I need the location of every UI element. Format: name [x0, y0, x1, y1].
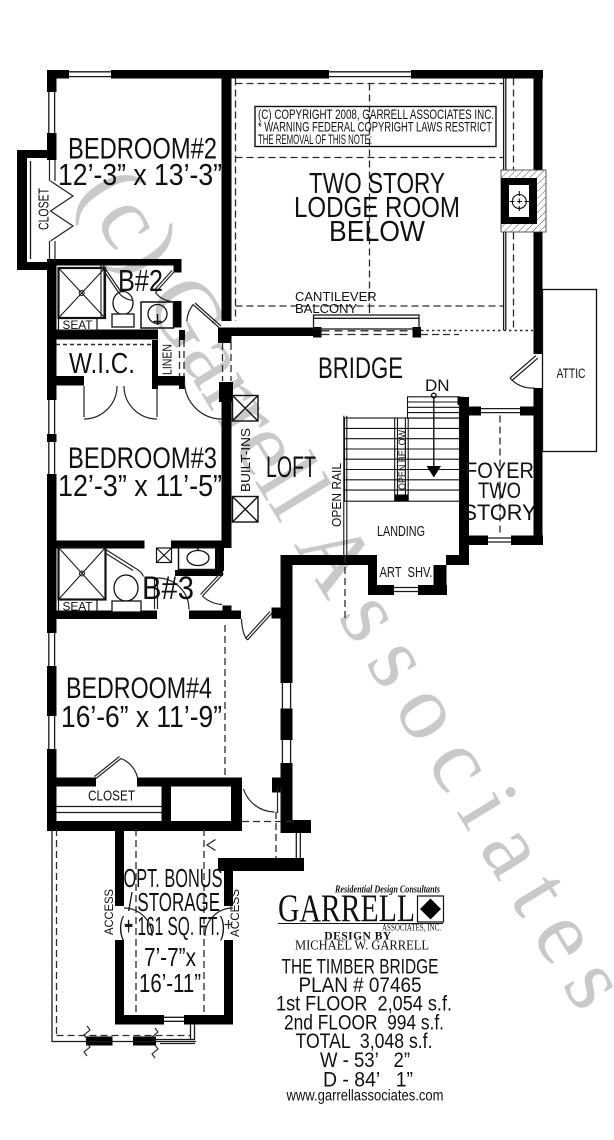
- svg-text:12’-3” x 11’-5”: 12’-3” x 11’-5”: [58, 468, 222, 503]
- svg-text:ART SHV.: ART SHV.: [380, 565, 433, 581]
- svg-text:SEAT: SEAT: [63, 600, 94, 614]
- svg-text:LINEN: LINEN: [160, 344, 175, 375]
- svg-text:DN: DN: [425, 376, 450, 395]
- svg-text:www.garrellassociates.com: www.garrellassociates.com: [286, 1088, 444, 1105]
- svg-text:BUILT-INS: BUILT-INS: [238, 428, 253, 492]
- svg-text:CLOSET: CLOSET: [36, 188, 53, 230]
- svg-text:ATTIC: ATTIC: [557, 366, 586, 381]
- svg-text:OPEN RAIL: OPEN RAIL: [329, 463, 344, 527]
- svg-text:MICHAEL W. GARRELL: MICHAEL W. GARRELL: [295, 938, 429, 953]
- svg-text:ACCESS: ACCESS: [102, 889, 116, 935]
- svg-text:B#2: B#2: [118, 263, 163, 298]
- svg-text:W.I.C.: W.I.C.: [69, 348, 135, 380]
- svg-text:THE REMOVAL OF THIS NOTE:: THE REMOVAL OF THIS NOTE:: [258, 131, 372, 147]
- svg-text:BALCONY: BALCONY: [295, 301, 357, 316]
- svg-text:BELOW: BELOW: [329, 216, 426, 248]
- svg-text:BRIDGE: BRIDGE: [318, 352, 403, 385]
- svg-text:12’-3” x 13’-3”: 12’-3” x 13’-3”: [58, 157, 222, 192]
- svg-text:ACCESS: ACCESS: [228, 889, 242, 937]
- svg-text:LOFT: LOFT: [266, 451, 316, 484]
- svg-text:B#3: B#3: [142, 570, 194, 606]
- svg-text:16’-11”: 16’-11”: [139, 968, 201, 998]
- svg-text:16’-6” x 11’-9”: 16’-6” x 11’-9”: [61, 699, 222, 734]
- svg-text:(+ 161 SQ. FT.): (+ 161 SQ. FT.): [119, 911, 225, 941]
- svg-text:LANDING: LANDING: [377, 524, 425, 540]
- svg-text:STORY: STORY: [463, 500, 537, 525]
- svg-text:SEAT: SEAT: [63, 318, 94, 332]
- svg-text:OPEN BELOW: OPEN BELOW: [397, 430, 409, 490]
- svg-text:CLOSET: CLOSET: [88, 789, 135, 805]
